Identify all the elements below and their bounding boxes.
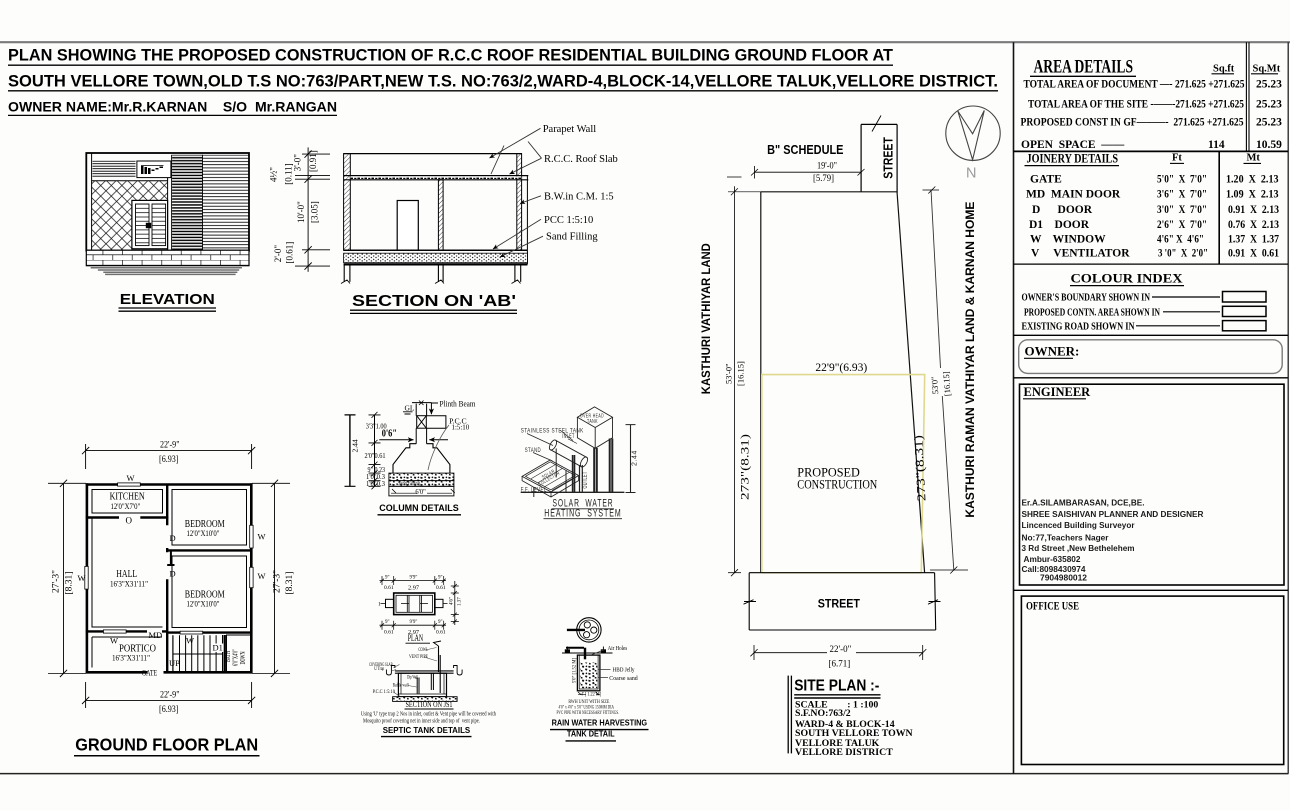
- svg-text:Sand Filling: Sand Filling: [398, 481, 420, 487]
- svg-text:BATH: BATH: [225, 651, 232, 662]
- svg-text:Using 'U' type trap 2 Nos in i: Using 'U' type trap 2 Nos in inlet, outl…: [361, 712, 496, 718]
- svg-text:D1: D1: [213, 643, 223, 653]
- svg-text:6'0": 6'0": [415, 487, 425, 496]
- svg-text:D1 DOOR: D1 DOOR: [1029, 219, 1090, 231]
- svg-text:[6.71]: [6.71]: [829, 658, 851, 668]
- svg-text:D DOOR: D DOOR: [1032, 204, 1093, 216]
- svg-text:[8.31]: [8.31]: [65, 572, 75, 595]
- svg-text:1: 1: [378, 602, 381, 608]
- svg-text:EXISTING ROAD SHOWN IN: EXISTING ROAD SHOWN IN: [1022, 321, 1135, 333]
- svg-text:O: O: [126, 516, 133, 526]
- svg-text:2.44: 2.44: [351, 439, 360, 452]
- svg-text:GROUND FLOOR PLAN: GROUND FLOOR PLAN: [75, 735, 258, 755]
- svg-text:1.37 X 1.37: 1.37 X 1.37: [1228, 233, 1279, 245]
- svg-text:W WINDOW: W WINDOW: [1030, 233, 1106, 245]
- svg-text:[16.15]: [16.15]: [941, 371, 953, 397]
- svg-text:2'6" X 7'0": 2'6" X 7'0": [1157, 219, 1207, 231]
- svg-text:10'-0": 10'-0": [296, 201, 306, 223]
- svg-text:KASTHURI RAMAN VATHIYAR LAND &: KASTHURI RAMAN VATHIYAR LAND & KARNAN HO…: [965, 201, 977, 517]
- svg-text:3'6" X 7'0": 3'6" X 7'0": [1157, 189, 1207, 201]
- svg-text:1.09 X 2.13: 1.09 X 2.13: [1226, 189, 1279, 201]
- svg-text:Dip Wall: Dip Wall: [407, 674, 418, 680]
- svg-text:Coarse sand: Coarse sand: [609, 676, 637, 682]
- svg-text:SEPTIC TANK DETAILS: SEPTIC TANK DETAILS: [383, 725, 471, 735]
- svg-text:10.59: 10.59: [1256, 139, 1282, 151]
- svg-text:No:77,Teachers Nager: No:77,Teachers Nager: [1022, 532, 1110, 542]
- svg-text:CONSTRUCTION: CONSTRUCTION: [797, 478, 877, 492]
- svg-text:4'6" X 4'6": 4'6" X 4'6": [1157, 233, 1204, 245]
- svg-text:114: 114: [1208, 139, 1225, 151]
- svg-text:R.C.C. Roof Slab: R.C.C. Roof Slab: [544, 154, 618, 165]
- svg-text:TANK: TANK: [587, 419, 598, 425]
- svg-text:B.W.in C.M. 1:5: B.W.in C.M. 1:5: [544, 192, 614, 203]
- svg-text:12'0"X10'0": 12'0"X10'0": [187, 600, 220, 609]
- svg-text:0.76 X 2.13: 0.76 X 2.13: [1228, 219, 1279, 231]
- svg-text:[6.93]: [6.93]: [159, 455, 179, 465]
- svg-text:W: W: [186, 636, 194, 646]
- svg-text:HBD Jelly: HBD Jelly: [613, 668, 635, 674]
- svg-text:PROPOSED CONST IN GF———- 271.: PROPOSED CONST IN GF———- 271.625 +271.62…: [1021, 117, 1244, 129]
- svg-text:SECTION ON 'AB': SECTION ON 'AB': [352, 293, 516, 310]
- svg-text:2'-0": 2'-0": [273, 245, 283, 263]
- svg-text:F.F. LEVEL: F.F. LEVEL: [521, 487, 547, 494]
- svg-text:DOWN: DOWN: [240, 651, 247, 664]
- svg-text:3 '0" X 2'0": 3 '0" X 2'0": [1158, 248, 1208, 260]
- svg-text:GATE: GATE: [1030, 174, 1062, 186]
- svg-text:6'0"X4'0": 6'0"X4'0": [233, 649, 240, 666]
- svg-text:1.20 X 2.13: 1.20 X 2.13: [1226, 174, 1279, 186]
- svg-text:W: W: [258, 532, 266, 542]
- svg-text:0.91 X 2.13: 0.91 X 2.13: [1228, 204, 1279, 216]
- svg-text:HALL: HALL: [116, 569, 137, 580]
- svg-text:INLET: INLET: [562, 433, 574, 440]
- svg-text:UP: UP: [169, 658, 180, 668]
- svg-text:9": 9": [438, 620, 443, 625]
- svg-text:27'-3": 27'-3": [273, 570, 283, 593]
- svg-text:5'0" X 7'0": 5'0" X 7'0": [1157, 174, 1207, 186]
- svg-text:Baffle wall: Baffle wall: [393, 682, 409, 689]
- svg-text:OWNER NAME:Mr.R.KARNAN S/O: OWNER NAME:Mr.R.KARNAN S/O Mr.RANGAN: [8, 99, 337, 115]
- svg-text:[0.11]: [0.11]: [284, 163, 294, 184]
- svg-text:22'9"(6.93): 22'9"(6.93): [815, 362, 867, 374]
- svg-text:TOTAL AREA OF THE SITE -——-271: TOTAL AREA OF THE SITE -——-271.625 +271.…: [1028, 99, 1244, 111]
- svg-text:W: W: [110, 636, 118, 646]
- svg-text:KASTHURI VATHIYAR LAND: KASTHURI VATHIYAR LAND: [701, 243, 713, 394]
- svg-text:STAND: STAND: [525, 447, 541, 454]
- svg-text:[5.79]: [5.79]: [813, 173, 834, 183]
- svg-text:ELEVATION: ELEVATION: [120, 291, 215, 308]
- svg-text:1'0"0.3: 1'0"0.3: [366, 480, 385, 488]
- svg-text:53'-0": 53'-0": [724, 363, 734, 384]
- svg-text:VELLORE DISTRICT: VELLORE DISTRICT: [795, 747, 893, 758]
- svg-text:0.61: 0.61: [384, 585, 394, 591]
- svg-text:U Trap: U Trap: [374, 666, 384, 672]
- svg-text:Air Holes: Air Holes: [608, 646, 628, 652]
- svg-text:7904980012: 7904980012: [1040, 573, 1087, 583]
- svg-text:STREET: STREET: [818, 597, 861, 611]
- svg-text:Sand Filling: Sand Filling: [546, 232, 598, 243]
- svg-text:COLOUR INDEX: COLOUR INDEX: [1071, 271, 1184, 286]
- svg-text:0.61: 0.61: [436, 585, 446, 591]
- svg-text:[8.31]: [8.31]: [285, 572, 295, 595]
- svg-text:273"(8.31): 273"(8.31): [911, 435, 928, 502]
- svg-text:OWNER:: OWNER:: [1025, 344, 1080, 359]
- svg-text:TOTAL AREA OF DOCUMENT —- 271.: TOTAL AREA OF DOCUMENT —- 271.625 +271.6…: [1024, 78, 1245, 90]
- svg-text:9": 9": [385, 620, 390, 625]
- svg-text:9'9": 9'9": [410, 576, 418, 581]
- svg-text:1.37: 1.37: [458, 597, 463, 606]
- svg-text:SITE PLAN :-: SITE PLAN :-: [794, 677, 879, 694]
- svg-text:[0.61]: [0.61]: [285, 242, 295, 264]
- svg-text:22'-0": 22'-0": [830, 644, 852, 654]
- svg-text:9": 9": [438, 576, 443, 581]
- svg-text:27'-3": 27'-3": [52, 570, 62, 593]
- svg-text:MD: MD: [149, 630, 163, 640]
- svg-text:22'-9": 22'-9": [160, 691, 180, 701]
- svg-text:Mt: Mt: [1247, 153, 1261, 164]
- svg-text:4' [ 1.22 M]: 4' [ 1.22 M]: [581, 691, 601, 697]
- svg-text:SECTION ON JS1: SECTION ON JS1: [406, 699, 453, 709]
- svg-text:0.91 X 0.61: 0.91 X 0.61: [1228, 248, 1279, 260]
- svg-text:1:5:10: 1:5:10: [452, 422, 470, 431]
- svg-text:25.23: 25.23: [1256, 78, 1282, 90]
- svg-text:Ambur-635802: Ambur-635802: [1024, 554, 1081, 564]
- svg-text:25.23: 25.23: [1256, 117, 1282, 129]
- svg-text:9'9": 9'9": [410, 620, 418, 625]
- svg-text:COLUMN DETAILS: COLUMN DETAILS: [379, 503, 458, 513]
- svg-text:4'6": 4'6": [450, 597, 455, 605]
- svg-text:[6.93]: [6.93]: [159, 705, 179, 715]
- svg-text:P.C.C 1:5:10: P.C.C 1:5:10: [373, 689, 396, 695]
- svg-text:PCC 1:5:10: PCC 1:5:10: [544, 215, 593, 226]
- svg-text:S.F.NO:763/2: S.F.NO:763/2: [795, 708, 851, 719]
- svg-text:12'0"X7'0": 12'0"X7'0": [111, 502, 141, 511]
- svg-text:2'0"0.61: 2'0"0.61: [365, 452, 386, 460]
- svg-text:MD MAIN DOOR: MD MAIN DOOR: [1026, 189, 1121, 201]
- svg-text:PVC PIPE WITH NECESSARY FITTIN: PVC PIPE WITH NECESSARY FITTINGS.: [557, 710, 620, 716]
- svg-text:53'0": 53'0": [929, 376, 940, 394]
- svg-text:Sq.Mt: Sq.Mt: [1253, 64, 1281, 75]
- svg-text:[3.05]: [3.05]: [310, 201, 320, 223]
- svg-text:3'-0": 3'-0": [293, 154, 303, 172]
- svg-text:Parapet Wall: Parapet Wall: [543, 124, 597, 135]
- svg-text:12'0"X10'0": 12'0"X10'0": [187, 529, 220, 538]
- svg-text:Mosquito proof covering net in: Mosquito proof covering net in inner sid…: [363, 718, 480, 725]
- svg-text:B" SCHEDULE: B" SCHEDULE: [767, 143, 843, 157]
- svg-text:Ft: Ft: [1172, 153, 1182, 164]
- svg-text:STREET: STREET: [882, 137, 896, 179]
- svg-text:Sq.ft: Sq.ft: [1213, 64, 1235, 75]
- svg-text:D: D: [170, 568, 176, 578]
- svg-text:273"(8.31): 273"(8.31): [738, 434, 752, 500]
- svg-text:PLAN SHOWING THE PROPOSED CONS: PLAN SHOWING THE PROPOSED CONSTRUCTION O…: [8, 46, 894, 65]
- svg-text:GL: GL: [405, 404, 415, 413]
- svg-text:SHREE SAISHIVAN PLANNER AND DE: SHREE SAISHIVAN PLANNER AND DESIGNER: [1022, 509, 1205, 519]
- svg-text:AREA DETAILS: AREA DETAILS: [1034, 57, 1134, 78]
- svg-text:D: D: [170, 533, 176, 543]
- svg-text:0.61: 0.61: [436, 630, 446, 636]
- svg-text:OWNER'S BOUNDARY SHOWN IN: OWNER'S BOUNDARY SHOWN IN: [1022, 292, 1151, 304]
- svg-text:OFFICE USE: OFFICE USE: [1026, 601, 1079, 613]
- svg-text:TANK DETAIL: TANK DETAIL: [567, 729, 615, 739]
- svg-text:0'6": 0'6": [382, 429, 397, 440]
- svg-text:4½": 4½": [269, 167, 279, 182]
- svg-text:16'3"X31'11": 16'3"X31'11": [110, 580, 148, 589]
- svg-text:3 Rd Street ,New Bethelehem: 3 Rd Street ,New Bethelehem: [1022, 543, 1135, 553]
- svg-text:[0.91]: [0.91]: [308, 150, 318, 172]
- svg-text:0.61: 0.61: [384, 630, 394, 636]
- svg-text:ENGINEER: ENGINEER: [1024, 385, 1092, 399]
- svg-text:VENT PIPE: VENT PIPE: [409, 654, 428, 660]
- svg-text:22'-9": 22'-9": [160, 441, 180, 451]
- svg-text:2.97: 2.97: [408, 585, 419, 592]
- svg-text:Lincenced Building Surveyor: Lincenced Building Surveyor: [1022, 520, 1136, 530]
- svg-text:W: W: [127, 473, 135, 483]
- svg-text:2.44: 2.44: [632, 450, 639, 466]
- svg-text:N: N: [966, 166, 976, 182]
- svg-text:GATE: GATE: [142, 668, 158, 678]
- svg-text:OPEN SPACE ——: OPEN SPACE ——: [1021, 139, 1125, 151]
- svg-text:16'3"X31'11": 16'3"X31'11": [112, 653, 150, 662]
- svg-text:W: W: [258, 571, 266, 581]
- svg-text:Plinth Beam: Plinth Beam: [440, 398, 476, 408]
- svg-text:RAIN WATER HARVESTING: RAIN WATER HARVESTING: [552, 718, 648, 728]
- svg-text:25.23: 25.23: [1256, 99, 1282, 111]
- svg-text:Er.A.SILAMBARASAN, DCE,BE.: Er.A.SILAMBARASAN, DCE,BE.: [1022, 498, 1145, 508]
- svg-text:W: W: [78, 573, 86, 583]
- svg-text:9": 9": [385, 576, 390, 581]
- svg-text:OUTLET: OUTLET: [582, 472, 589, 489]
- svg-text:19'-0": 19'-0": [817, 161, 837, 171]
- svg-text:5'0" [1.52 M]: 5'0" [1.52 M]: [572, 658, 578, 683]
- svg-text:SOUTH VELLORE TOWN,OLD T.S NO:: SOUTH VELLORE TOWN,OLD T.S NO:763/PART,N…: [8, 72, 998, 91]
- svg-text:3'0" X 7'0": 3'0" X 7'0": [1157, 204, 1207, 216]
- svg-text:JOINERY DETAILS: JOINERY DETAILS: [1027, 152, 1119, 166]
- svg-text:PLAN: PLAN: [408, 633, 424, 643]
- svg-text:PROPOSED CONTN. AREA SHOWN IN: PROPOSED CONTN. AREA SHOWN IN: [1024, 307, 1160, 319]
- svg-text:V VENTILATOR: V VENTILATOR: [1031, 248, 1130, 260]
- svg-text:[16.15]: [16.15]: [736, 361, 746, 386]
- svg-text:COWL: COWL: [418, 647, 428, 653]
